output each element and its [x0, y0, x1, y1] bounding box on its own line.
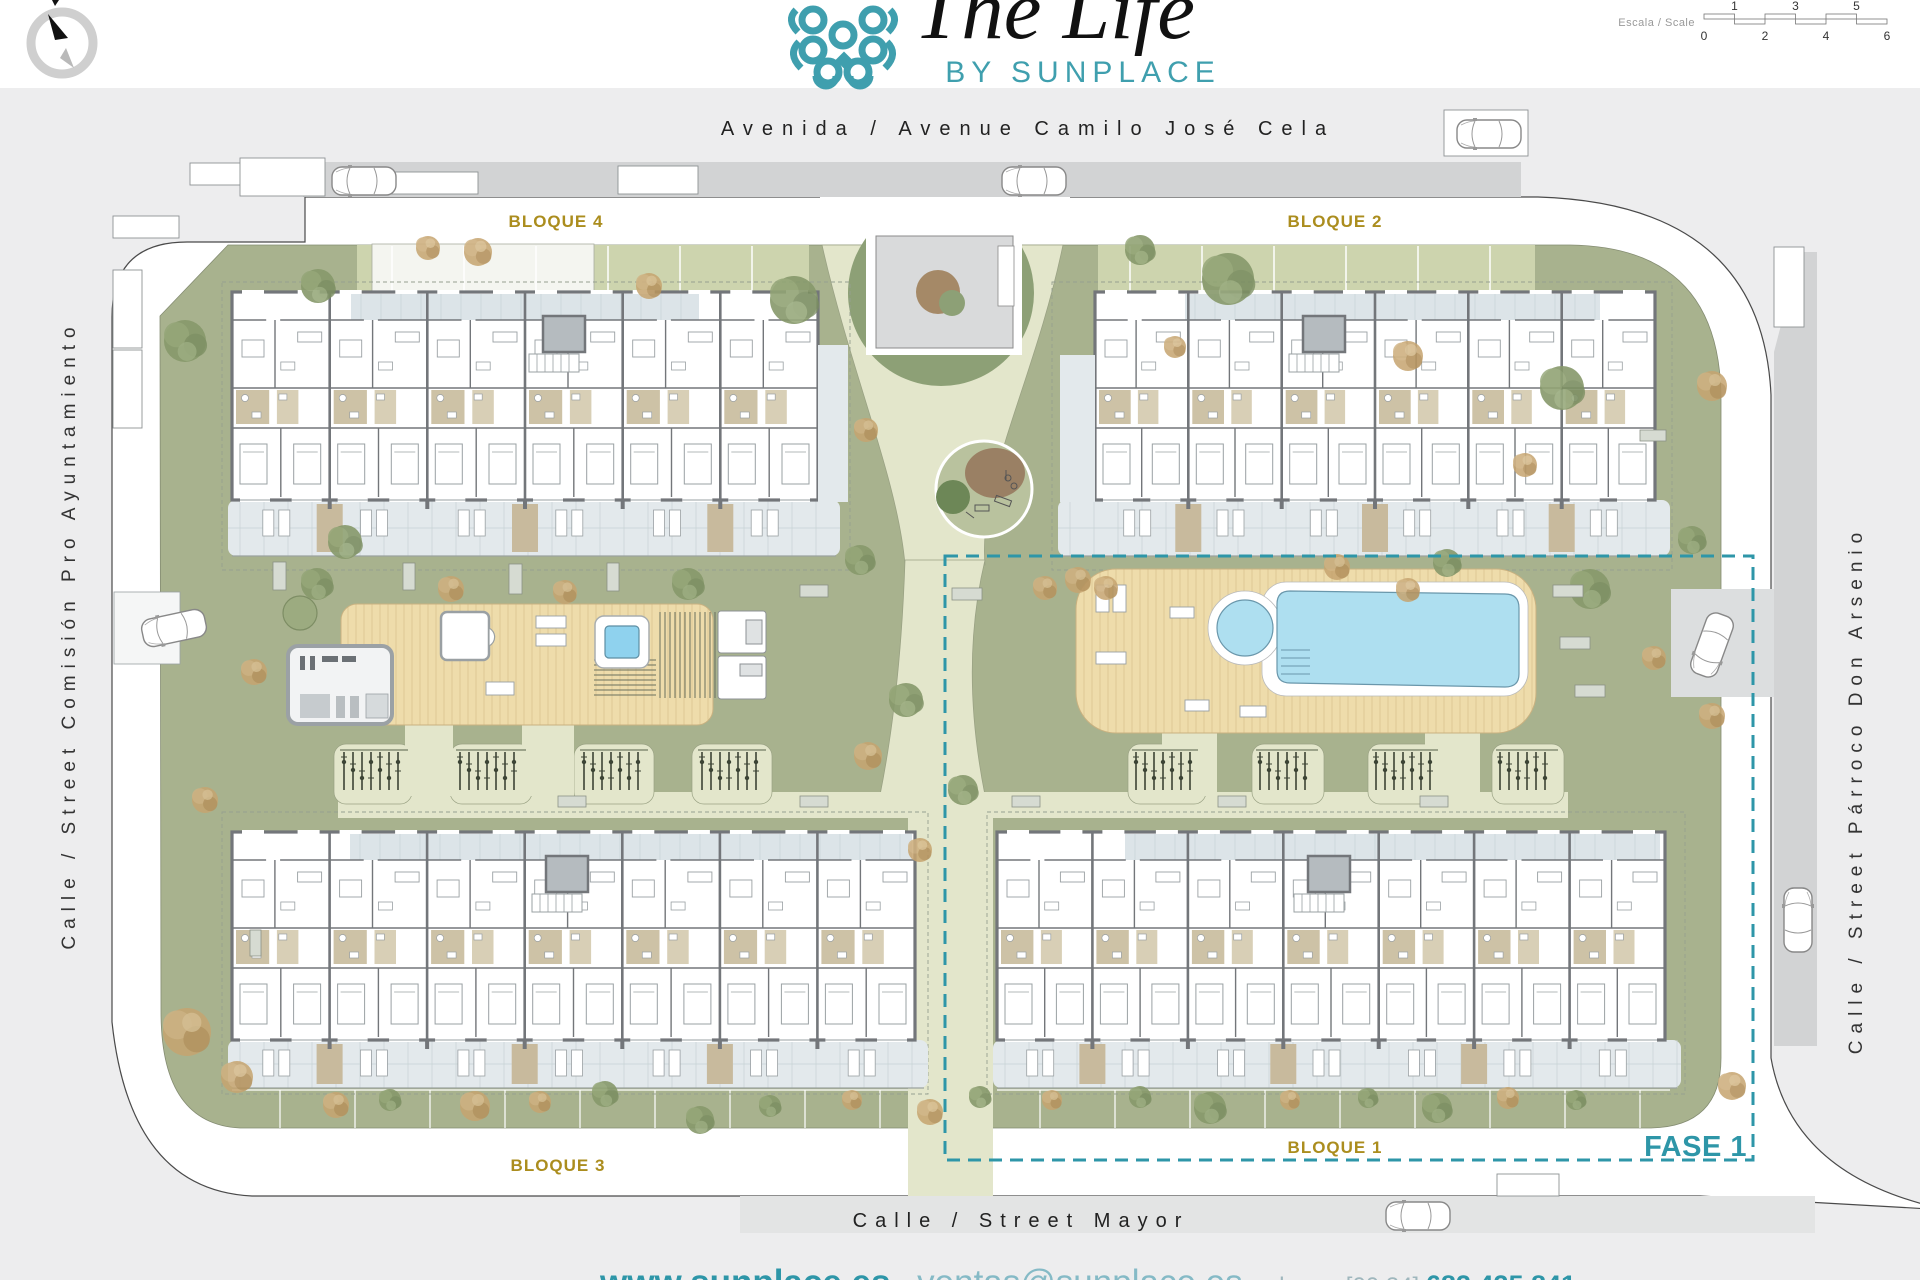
svg-text:The Life: The Life: [914, 0, 1195, 57]
svg-text:Calle / Street Párroco Don Ars: Calle / Street Párroco Don Arsenio: [1846, 526, 1867, 1054]
svg-text:4: 4: [1823, 29, 1830, 43]
svg-text:0: 0: [1701, 29, 1708, 43]
svg-text:5: 5: [1853, 0, 1860, 13]
svg-text:BLOQUE 3: BLOQUE 3: [511, 1156, 606, 1175]
svg-text:BLOQUE 1: BLOQUE 1: [1288, 1138, 1383, 1157]
svg-text:Calle / Street Mayor: Calle / Street Mayor: [853, 1210, 1190, 1232]
svg-text:Calle / Street Comisión Pro Ay: Calle / Street Comisión Pro Ayuntamiento: [59, 320, 80, 949]
svg-text:BY SUNPLACE: BY SUNPLACE: [945, 56, 1221, 89]
svg-text:FASE 1: FASE 1: [1644, 1131, 1747, 1163]
svg-text:Escala / Scale: Escala / Scale: [1618, 17, 1695, 29]
svg-text:BLOQUE 4: BLOQUE 4: [509, 212, 604, 231]
svg-text:6: 6: [1884, 29, 1891, 43]
svg-text:2: 2: [1762, 29, 1769, 43]
svg-text:3: 3: [1792, 0, 1799, 13]
svg-text:1: 1: [1731, 0, 1738, 13]
svg-text:Avenida / Avenue Camilo José C: Avenida / Avenue Camilo José Cela: [721, 118, 1335, 140]
svg-text:BLOQUE 2: BLOQUE 2: [1288, 212, 1383, 231]
